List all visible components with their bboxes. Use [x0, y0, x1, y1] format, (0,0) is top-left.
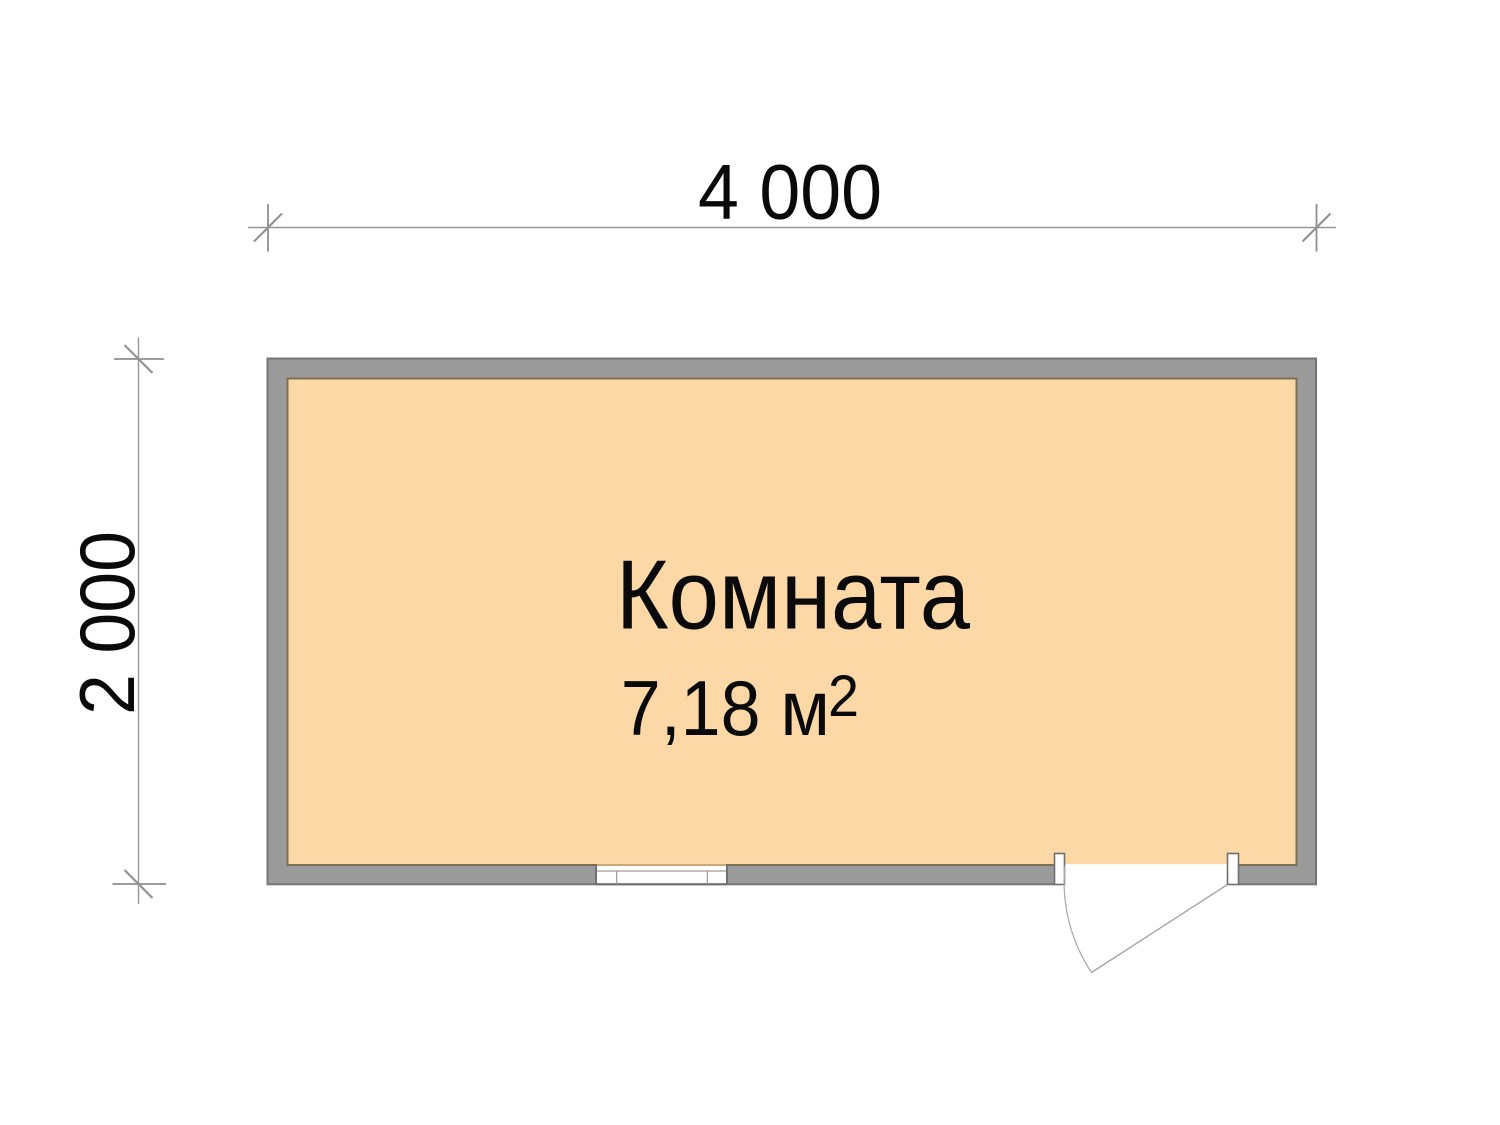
svg-text:4 000: 4 000 — [698, 150, 882, 236]
svg-text:Комната: Комната — [616, 540, 970, 650]
svg-text:2: 2 — [828, 664, 859, 729]
svg-text:2 000: 2 000 — [65, 531, 151, 715]
svg-text:7,18 м: 7,18 м — [621, 666, 830, 752]
